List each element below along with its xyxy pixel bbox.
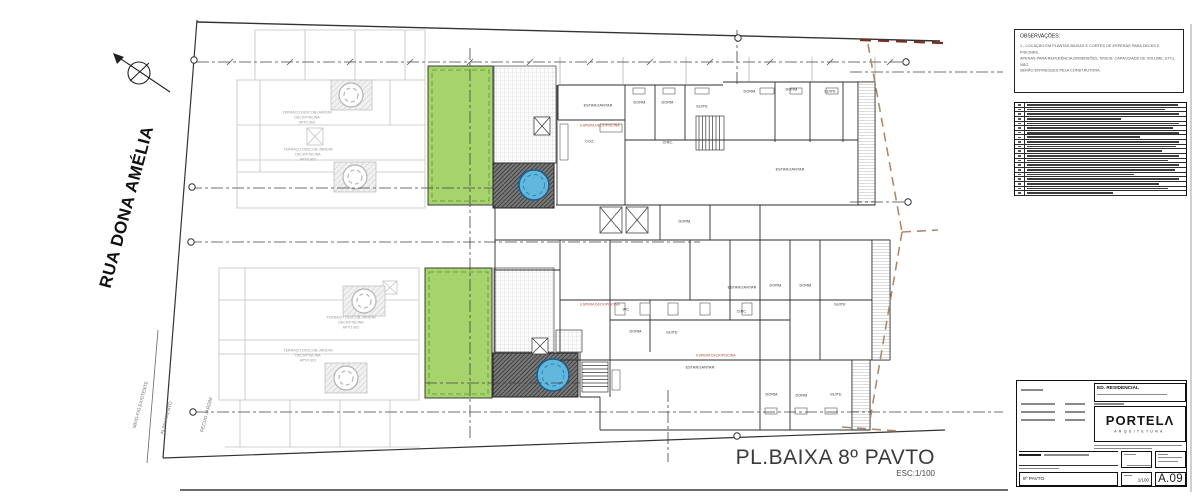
sheet-scale: ESC:1/100 — [896, 469, 935, 478]
scale-box: 1/100 — [1121, 472, 1152, 486]
field-value-bar — [1021, 419, 1055, 421]
revision-number-cell — [1015, 182, 1025, 186]
revision-text-bar — [1027, 104, 1178, 106]
revision-number-bar — [1018, 118, 1021, 120]
revision-number-cell — [1015, 163, 1025, 167]
revision-text-cell — [1025, 113, 1186, 115]
work-row — [1019, 465, 1118, 469]
revision-text-bar — [1027, 146, 1176, 148]
revision-number-cell — [1015, 168, 1025, 172]
revision-number-bar — [1018, 127, 1021, 129]
revision-text-cell — [1025, 150, 1186, 152]
revision-number-cell — [1015, 145, 1025, 149]
revision-text-cell — [1025, 123, 1186, 125]
revision-text-cell — [1025, 141, 1186, 143]
revision-number-cell — [1015, 103, 1025, 107]
revision-number-cell — [1015, 177, 1025, 181]
drawing-sheet: TERRAÇO DESCOB./JARDIMDECK/PISCINAAPTO 8… — [0, 0, 1199, 500]
revision-number-bar — [1018, 188, 1021, 190]
revision-number-bar — [1018, 123, 1021, 125]
sheet-number: A.09 — [1158, 473, 1183, 485]
revision-text-cell — [1025, 109, 1186, 111]
green-areas — [425, 66, 493, 398]
observations-line: SERÃO ENTREGUES PELA CONSTRUTORA. — [1020, 69, 1178, 75]
contact-line — [1094, 445, 1182, 446]
revision-text-cell — [1025, 104, 1186, 106]
revision-text-bar — [1027, 164, 1179, 166]
revision-text-bar — [1027, 155, 1179, 157]
revision-number-cell — [1015, 112, 1025, 116]
revision-number-bar — [1018, 104, 1021, 106]
revision-text-bar — [1027, 136, 1140, 138]
revision-number-bar — [1018, 146, 1021, 148]
revision-row — [1015, 191, 1186, 196]
title-block: ED. RESIDENCIAL PORTELΛ ARQUITETURA 8º P… — [1016, 380, 1187, 487]
revision-number-bar — [1018, 113, 1021, 115]
revision-text-cell — [1025, 136, 1186, 138]
revision-text-bar — [1027, 127, 1173, 129]
observations-line: APENAS PARA REFERÊNCIA (DIMENSÕES, NIVEI… — [1020, 56, 1178, 68]
revision-text-cell — [1025, 127, 1186, 129]
sheet-title: PL.BAIXA 8º PAVTO — [736, 446, 935, 470]
revision-number-bar — [1018, 178, 1021, 180]
revision-number-cell — [1015, 122, 1025, 126]
field-value-bar — [1065, 419, 1085, 421]
revision-text-bar — [1027, 132, 1179, 134]
revision-number-bar — [1018, 109, 1021, 111]
revision-number-bar — [1018, 183, 1021, 185]
location-box — [1155, 451, 1186, 468]
revision-number-cell — [1015, 131, 1025, 135]
revision-text-bar — [1027, 188, 1168, 190]
lower-floor-gray-outlines — [219, 30, 425, 447]
field-label-bar — [1094, 403, 1124, 405]
stairs — [582, 116, 724, 392]
field-label-bar — [1021, 389, 1043, 391]
sheet-content: 8º PAVTO — [1023, 477, 1044, 482]
dimension-extensions — [560, 57, 875, 85]
revision-text-cell — [1025, 192, 1186, 194]
revision-number-bar — [1018, 169, 1021, 171]
revision-number-cell — [1015, 135, 1025, 139]
revision-text-bar — [1027, 109, 1165, 111]
revision-number-bar — [1018, 174, 1021, 176]
revision-text-bar — [1027, 178, 1179, 180]
revision-text-cell — [1025, 174, 1186, 176]
signature-box — [1121, 451, 1152, 468]
grid-terraces — [494, 66, 582, 352]
revision-number-cell — [1015, 187, 1025, 191]
revision-text-cell — [1025, 160, 1186, 162]
contact-line — [1094, 448, 1152, 449]
revision-text-cell — [1025, 169, 1186, 171]
revision-number-bar — [1018, 141, 1021, 143]
architect-logo: PORTELΛ ARQUITETURA — [1094, 406, 1186, 442]
scale-value: 1/100 — [1138, 479, 1149, 484]
revision-text-cell — [1025, 118, 1186, 120]
revision-number-bar — [1018, 155, 1021, 157]
revision-text-cell — [1025, 132, 1186, 134]
field-value-bar — [1021, 411, 1055, 413]
revision-text-cell — [1025, 188, 1186, 190]
sheet-content-box: 8º PAVTO — [1019, 472, 1118, 486]
revision-text-bar — [1027, 160, 1168, 162]
project-name: ED. RESIDENCIAL — [1097, 386, 1183, 391]
revision-text-cell — [1025, 178, 1186, 180]
revision-text-bar — [1027, 174, 1134, 176]
revision-number-cell — [1015, 108, 1025, 112]
revision-text-cell — [1025, 183, 1186, 185]
revision-text-cell — [1025, 155, 1186, 157]
revision-text-bar — [1027, 183, 1159, 185]
revision-number-bar — [1018, 160, 1021, 162]
sheet-number-box: A.09 — [1155, 472, 1186, 486]
field-value-bar — [1021, 403, 1055, 405]
revision-text-bar — [1027, 169, 1175, 171]
revision-number-cell — [1015, 159, 1025, 163]
project-address-line — [1097, 394, 1167, 396]
revision-number-cell — [1015, 117, 1025, 121]
revision-text-cell — [1025, 146, 1186, 148]
revision-text-bar — [1027, 141, 1179, 143]
revision-text-bar — [1027, 150, 1162, 152]
revision-number-bar — [1018, 150, 1021, 152]
revision-number-bar — [1018, 137, 1021, 139]
observations-box: OBSERVAÇÕES: 1 - LOCAÇÃO EM PLANTAS BAIX… — [1014, 29, 1184, 93]
revision-text-bar — [1027, 118, 1121, 120]
revision-number-bar — [1018, 132, 1021, 134]
revision-text-bar — [1027, 192, 1113, 194]
revision-number-bar — [1018, 192, 1021, 194]
revision-number-cell — [1015, 191, 1025, 195]
spa-tubs-gray — [325, 80, 385, 393]
revision-number-cell — [1015, 154, 1025, 158]
owner-row — [1019, 451, 1118, 456]
field-value-bar — [1065, 411, 1085, 413]
observations-line: 1 - LOCAÇÃO EM PLANTAS BAIXAS E CORTES D… — [1020, 44, 1178, 56]
logo-subtitle: ARQUITETURA — [1115, 430, 1165, 433]
logo-wordmark: PORTELΛ — [1106, 414, 1174, 427]
north-arrow-icon — [113, 53, 170, 92]
revision-number-cell — [1015, 173, 1025, 177]
observations-text: 1 - LOCAÇÃO EM PLANTAS BAIXAS E CORTES D… — [1020, 44, 1178, 75]
revision-table — [1014, 102, 1187, 196]
revision-number-cell — [1015, 126, 1025, 130]
revision-text-cell — [1025, 164, 1186, 166]
revision-text-bar — [1027, 123, 1179, 125]
revision-number-cell — [1015, 149, 1025, 153]
revision-number-cell — [1015, 140, 1025, 144]
revision-number-bar — [1018, 164, 1021, 166]
project-name-box: ED. RESIDENCIAL — [1094, 383, 1186, 402]
field-value-bar — [1065, 403, 1085, 405]
observations-title: OBSERVAÇÕES: — [1020, 34, 1177, 39]
revision-text-bar — [1027, 113, 1179, 115]
